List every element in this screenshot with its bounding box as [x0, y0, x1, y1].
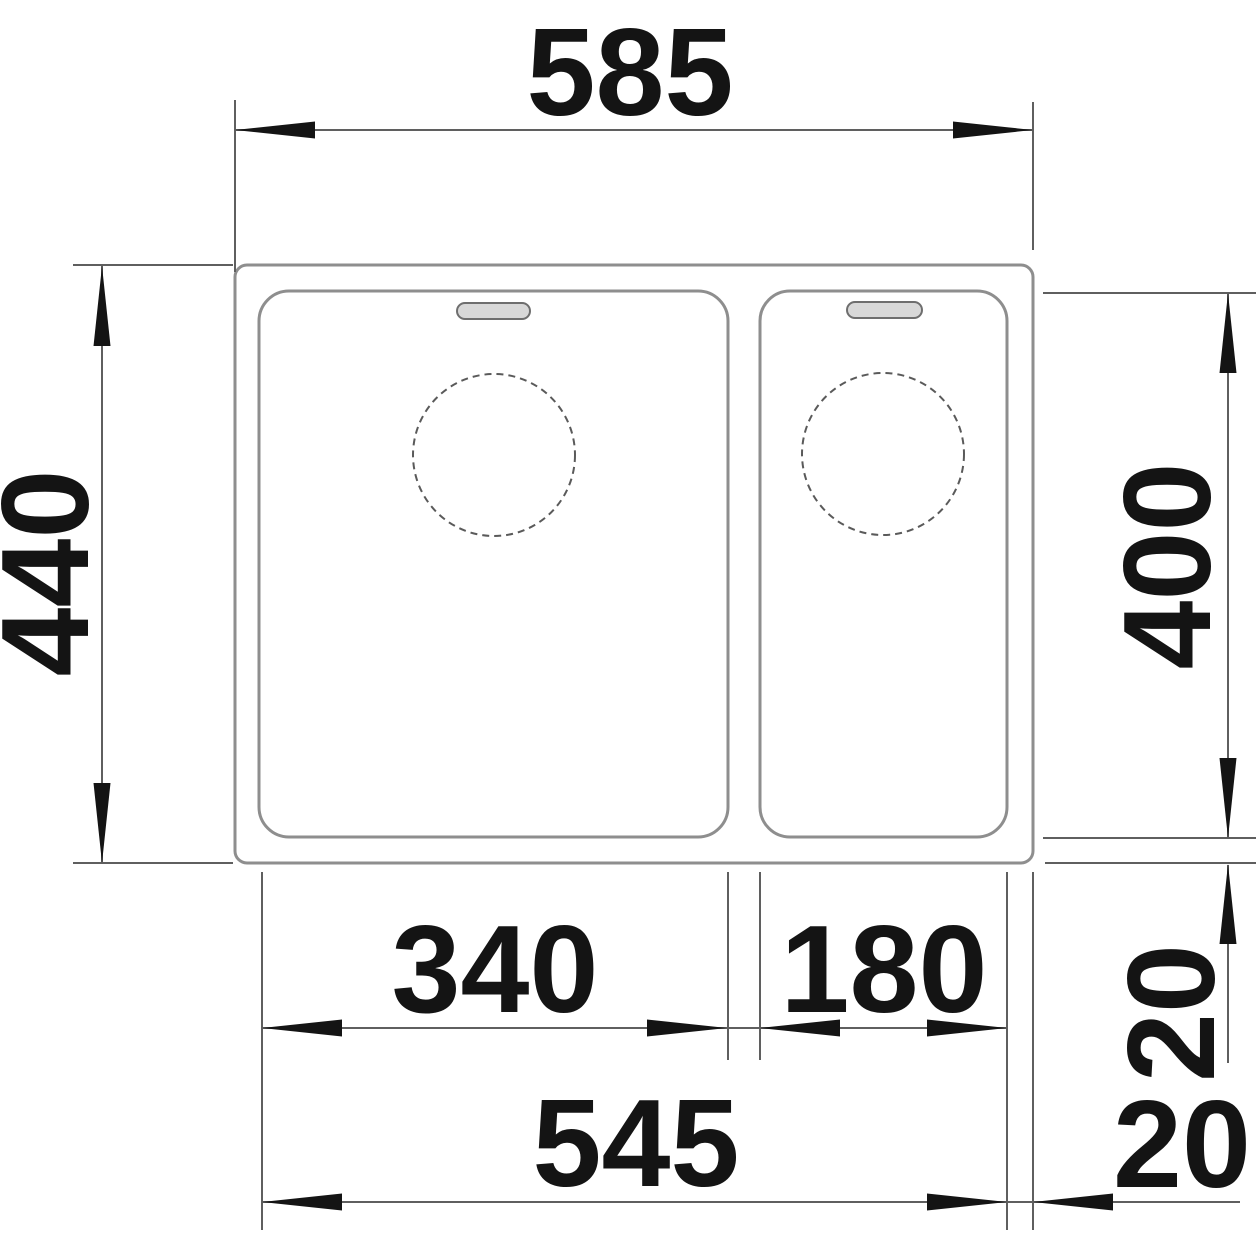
dim-label-rim-gap-horizontal: 20: [1113, 1076, 1251, 1214]
dim-label-overall-depth: 440: [0, 470, 115, 677]
arrow-overall-width-left: [235, 122, 315, 139]
arrow-bowl-depth-top: [1220, 293, 1237, 373]
main-bowl-overflow-slot: [457, 303, 530, 319]
arrow-rim-gap-vertical: [1220, 864, 1237, 944]
dimension-labels: 585 440 400 340 180 545 20 20: [0, 4, 1251, 1214]
dim-label-overall-width: 585: [527, 4, 734, 142]
dim-label-bowls-combined-width: 545: [533, 1075, 740, 1213]
arrow-main-bowl-width-right: [647, 1020, 727, 1037]
half-bowl-overflow-slot: [847, 302, 922, 318]
dimension-arrows: [94, 122, 1237, 1211]
sink-outer-rim-outline: [235, 265, 1033, 863]
sink-body: [235, 265, 1033, 863]
arrow-overall-width-right: [953, 122, 1033, 139]
sink-technical-drawing: 585 440 400 340 180 545 20 20: [0, 0, 1259, 1259]
main-bowl-outline: [259, 291, 728, 837]
half-bowl-drain-circle: [802, 373, 964, 535]
arrow-bowl-depth-bottom: [1220, 758, 1237, 838]
arrow-bowls-combined-right: [927, 1194, 1007, 1211]
dim-label-main-bowl-width: 340: [392, 901, 599, 1039]
arrow-rim-gap-horizontal: [1033, 1194, 1113, 1211]
dim-label-half-bowl-width: 180: [781, 901, 988, 1039]
arrow-overall-depth-bottom: [94, 783, 111, 863]
extension-lines: [73, 100, 1256, 1230]
drawing-svg: 585 440 400 340 180 545 20 20: [0, 0, 1259, 1259]
arrow-main-bowl-width-left: [262, 1020, 342, 1037]
dim-label-rim-gap-vertical: 20: [1103, 944, 1241, 1082]
half-bowl-outline: [760, 291, 1007, 837]
arrow-overall-depth-top: [94, 266, 111, 346]
dim-label-bowl-depth: 400: [1099, 463, 1237, 670]
arrow-bowls-combined-left: [262, 1194, 342, 1211]
main-bowl-drain-circle: [413, 374, 575, 536]
